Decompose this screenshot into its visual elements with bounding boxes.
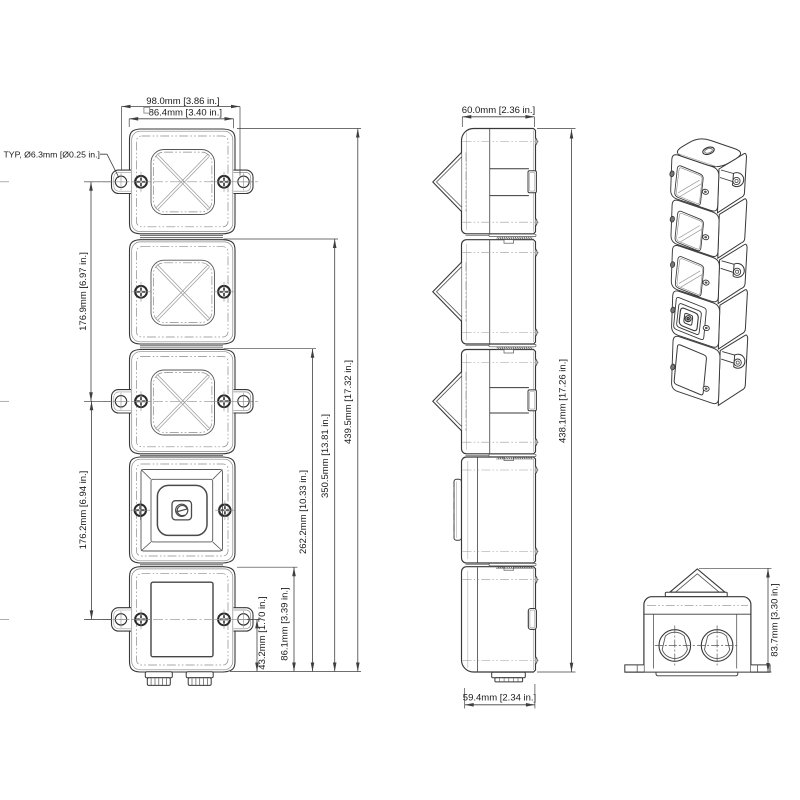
svg-text:350.5mm [13.81 in.]: 350.5mm [13.81 in.]	[320, 414, 331, 498]
svg-text:60.0mm [2.36 in.]: 60.0mm [2.36 in.]	[462, 105, 535, 116]
svg-text:438.1mm [17.26 in.]: 438.1mm [17.26 in.]	[557, 359, 568, 443]
svg-text:43.2mm [1.70 in.]: 43.2mm [1.70 in.]	[257, 596, 268, 669]
svg-text:TYP, Ø6.3mm [Ø0.25 in.]: TYP, Ø6.3mm [Ø0.25 in.]	[4, 150, 100, 160]
svg-text:439.5mm [17.32 in.]: 439.5mm [17.32 in.]	[343, 360, 354, 444]
svg-text:176.9mm [6.97 in.]: 176.9mm [6.97 in.]	[78, 252, 89, 331]
svg-text:86.1mm [3.39 in.]: 86.1mm [3.39 in.]	[280, 587, 291, 660]
svg-text:86.4mm [3.40 in.]: 86.4mm [3.40 in.]	[149, 108, 222, 119]
svg-text:98.0mm [3.86 in.]: 98.0mm [3.86 in.]	[146, 96, 219, 107]
svg-text:176.2mm [6.94 in.]: 176.2mm [6.94 in.]	[78, 471, 89, 550]
svg-text:83.7mm [3.30 in.]: 83.7mm [3.30 in.]	[769, 583, 780, 656]
svg-text:59.4mm [2.34 in.]: 59.4mm [2.34 in.]	[463, 692, 536, 703]
svg-text:262.2mm [10.33 in.]: 262.2mm [10.33 in.]	[298, 470, 309, 554]
